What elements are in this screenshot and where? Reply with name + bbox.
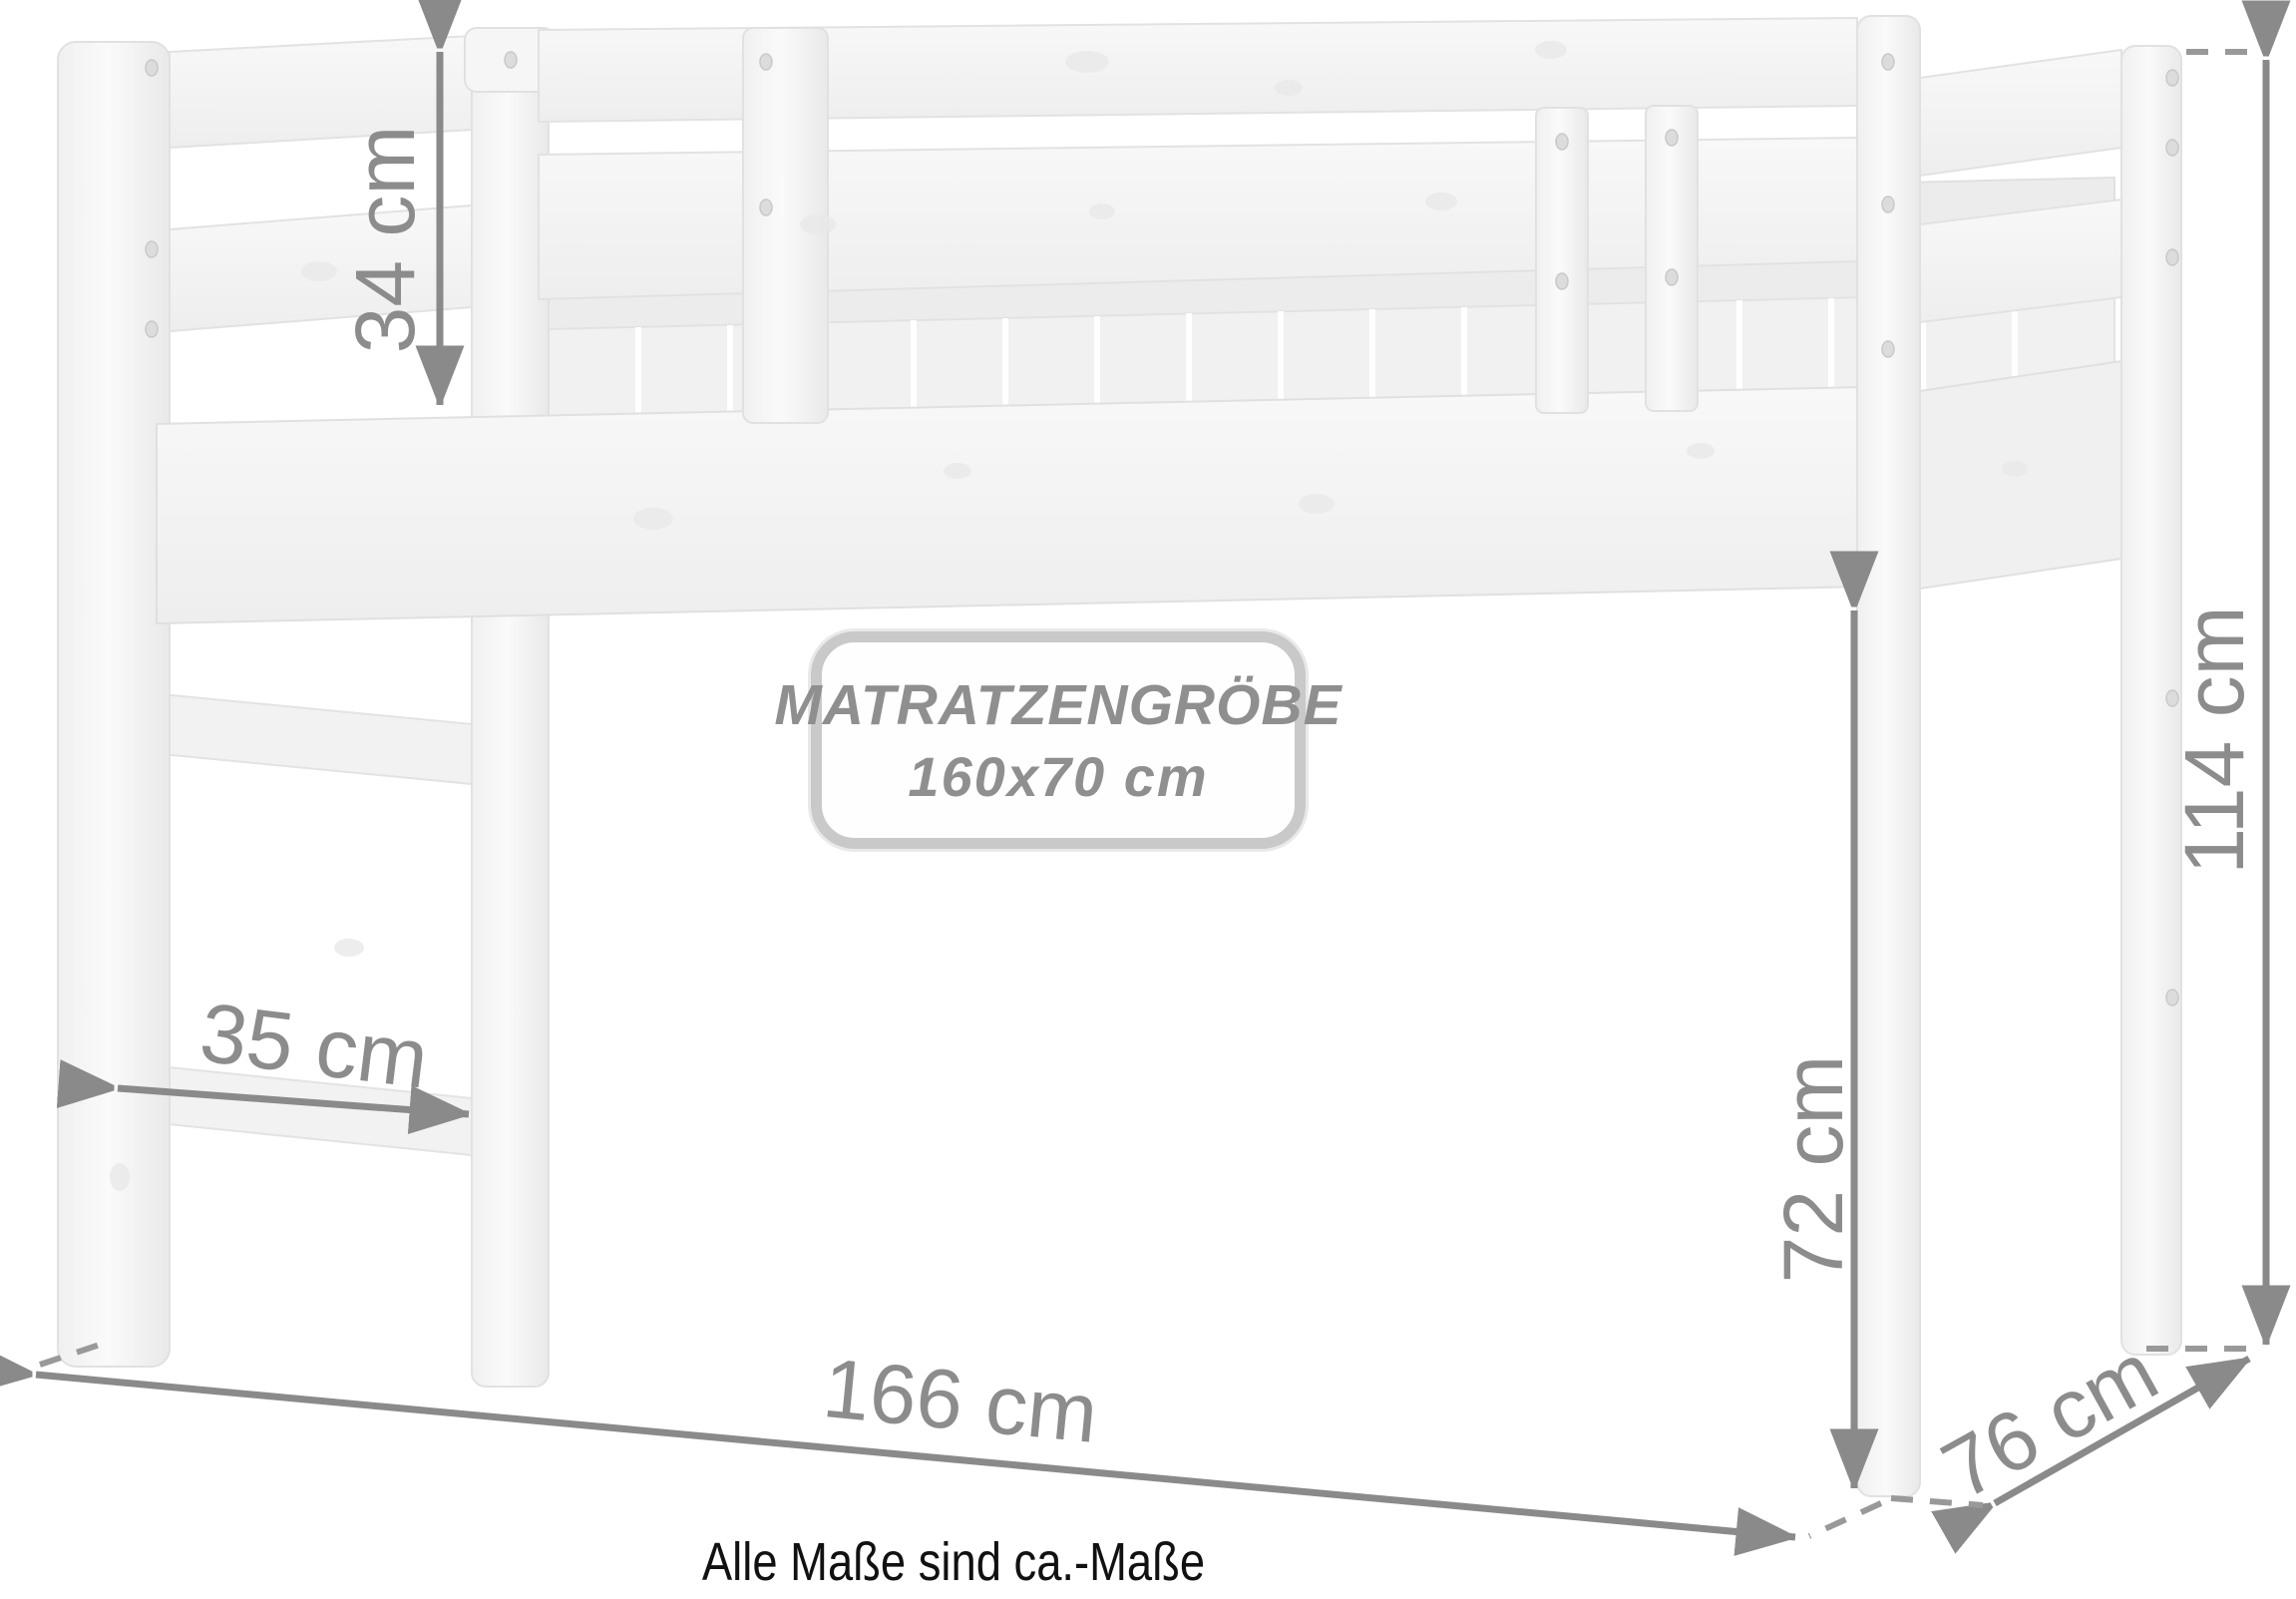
ladder-right-rail bbox=[472, 30, 549, 1387]
mattress-size-value: 160x70 cm bbox=[908, 744, 1208, 809]
mattress-size-title: MATRATZENGRÖBE bbox=[774, 672, 1341, 738]
label-rail-height: 34 cm bbox=[343, 126, 427, 354]
footnote: Alle Maße sind ca.-Maße bbox=[702, 1531, 1205, 1593]
mattress-size-badge: MATRATZENGRÖBE 160x70 cm bbox=[811, 631, 1306, 849]
label-total-height: 114 cm bbox=[2172, 605, 2256, 874]
label-under-bed-clearance: 72 cm bbox=[1771, 1055, 1855, 1284]
product-dimension-diagram: 34 cm 35 cm 166 cm 76 cm 72 cm 114 cm MA… bbox=[0, 0, 2296, 1599]
front-right-post bbox=[1857, 16, 1920, 1496]
